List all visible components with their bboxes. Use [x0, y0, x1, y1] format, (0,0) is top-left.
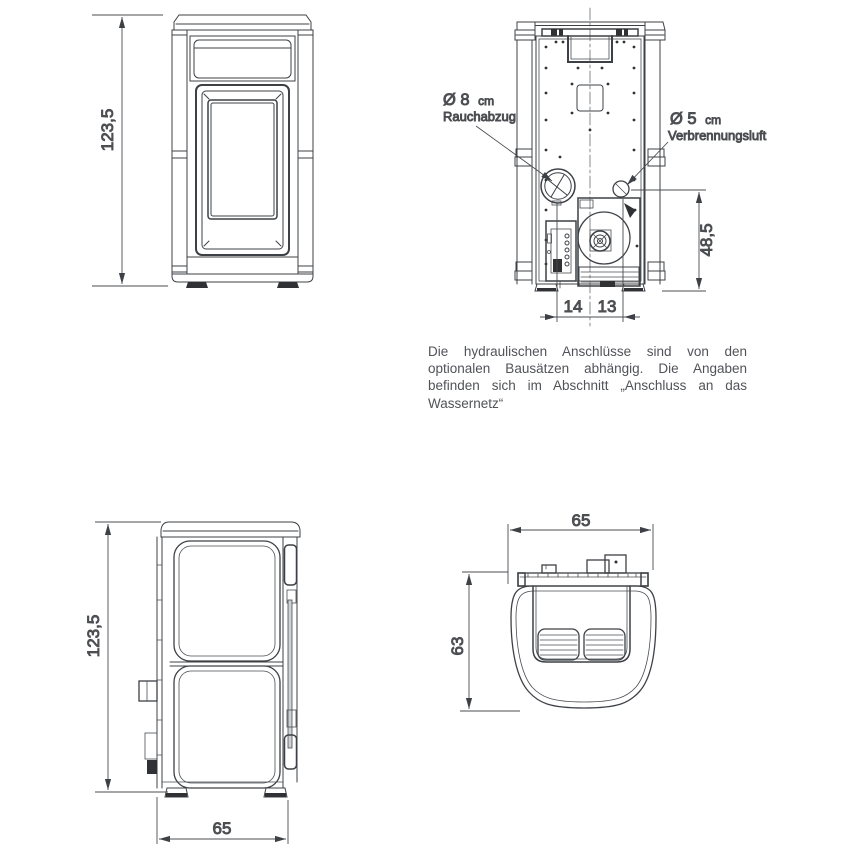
fan-unit — [578, 198, 640, 287]
combustion-air-inlet — [613, 181, 629, 197]
side-view-drawing — [139, 522, 300, 797]
rear-annotations: Ø 8 cm Rauchabzug Ø 5 cm Verbrennungsluf… — [443, 91, 767, 185]
electrical-box — [546, 221, 576, 288]
air-inlet-diameter-label: Ø 5 cm — [670, 110, 721, 128]
side-depth-dimension: 65 — [157, 797, 288, 844]
smoke-outlet-name-label: Rauchabzug — [443, 109, 516, 124]
smoke-outlet-diameter-label: Ø 8 cm — [443, 91, 494, 109]
stove-technical-drawing: 123,5 — [0, 0, 850, 850]
side-height-dimension-label: 123,5 — [84, 615, 103, 658]
hydraulic-connections-note: Die hydraulischen Anschlüsse sind von de… — [428, 343, 747, 412]
top-width-dimension-label: 65 — [572, 511, 591, 530]
side-height-dimension: 123,5 — [84, 522, 168, 792]
note-line-4: Wassernetz“ — [428, 395, 747, 412]
rear-offset-left-label: 14 — [564, 297, 583, 316]
rear-offset-right-label: 13 — [598, 297, 617, 316]
smoke-outlet — [541, 169, 575, 205]
top-depth-dimension-label: 63 — [448, 637, 467, 656]
front-view-drawing — [172, 15, 313, 288]
rear-air-height-dimension-label: 48,5 — [697, 223, 716, 256]
front-height-dimension-label: 123,5 — [98, 109, 117, 152]
manual-dimension-page: 123,5 — [0, 0, 850, 850]
rear-panel-screws — [545, 41, 639, 266]
rear-view-drawing — [515, 8, 665, 326]
top-depth-dimension: 63 — [448, 572, 520, 711]
note-line-2: optionalen Bausätzen abhängig. Die Angab… — [428, 360, 747, 377]
air-inlet-name-label: Verbrennungsluft — [668, 128, 767, 143]
front-height-dimension: 123,5 — [92, 15, 168, 286]
note-line-1: Die hydraulischen Anschlüsse sind von de… — [428, 343, 747, 360]
note-line-3: befinden sich im Abschnitt „Anschluss an… — [428, 377, 747, 394]
side-depth-dimension-label: 65 — [213, 819, 232, 838]
top-view-drawing — [511, 555, 656, 708]
